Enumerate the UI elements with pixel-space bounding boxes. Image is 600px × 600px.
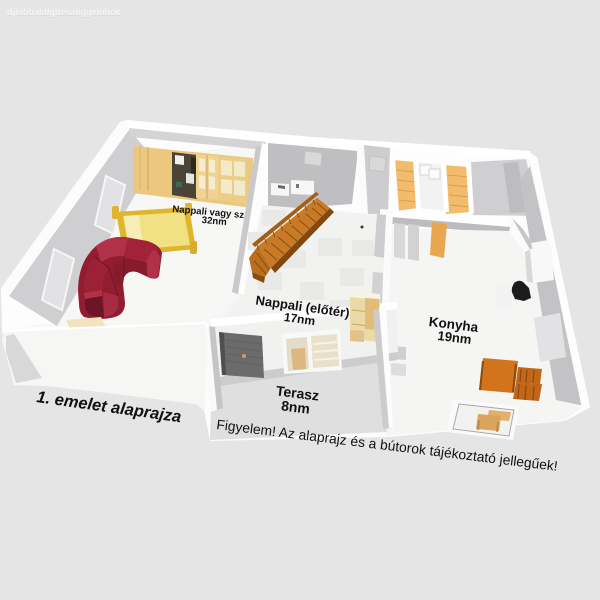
svg-text:djlobbaldigitesaliggelohok: djlobbaldigitesaliggelohok [7, 7, 122, 17]
svg-text:32nm: 32nm [201, 215, 227, 228]
